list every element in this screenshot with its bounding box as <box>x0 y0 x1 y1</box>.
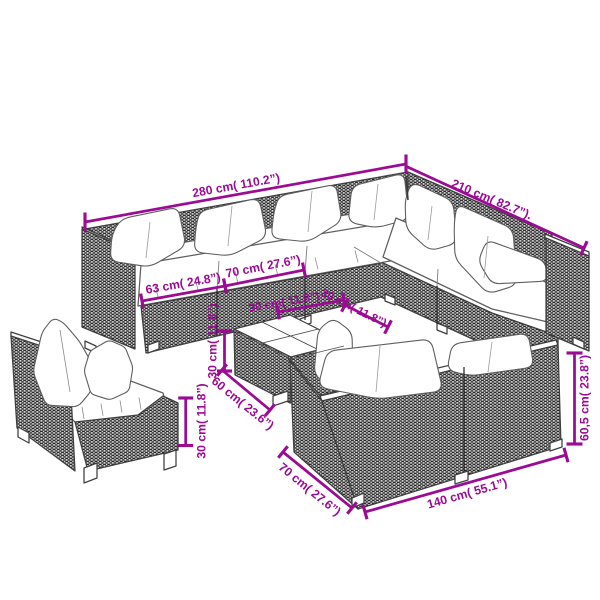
svg-text:30 cm( 11.8”): 30 cm( 11.8”) <box>205 303 219 378</box>
svg-text:60,5 cm( 23.8”): 60,5 cm( 23.8”) <box>577 355 591 441</box>
svg-text:30 cm( 11.8”): 30 cm( 11.8”) <box>194 383 208 458</box>
